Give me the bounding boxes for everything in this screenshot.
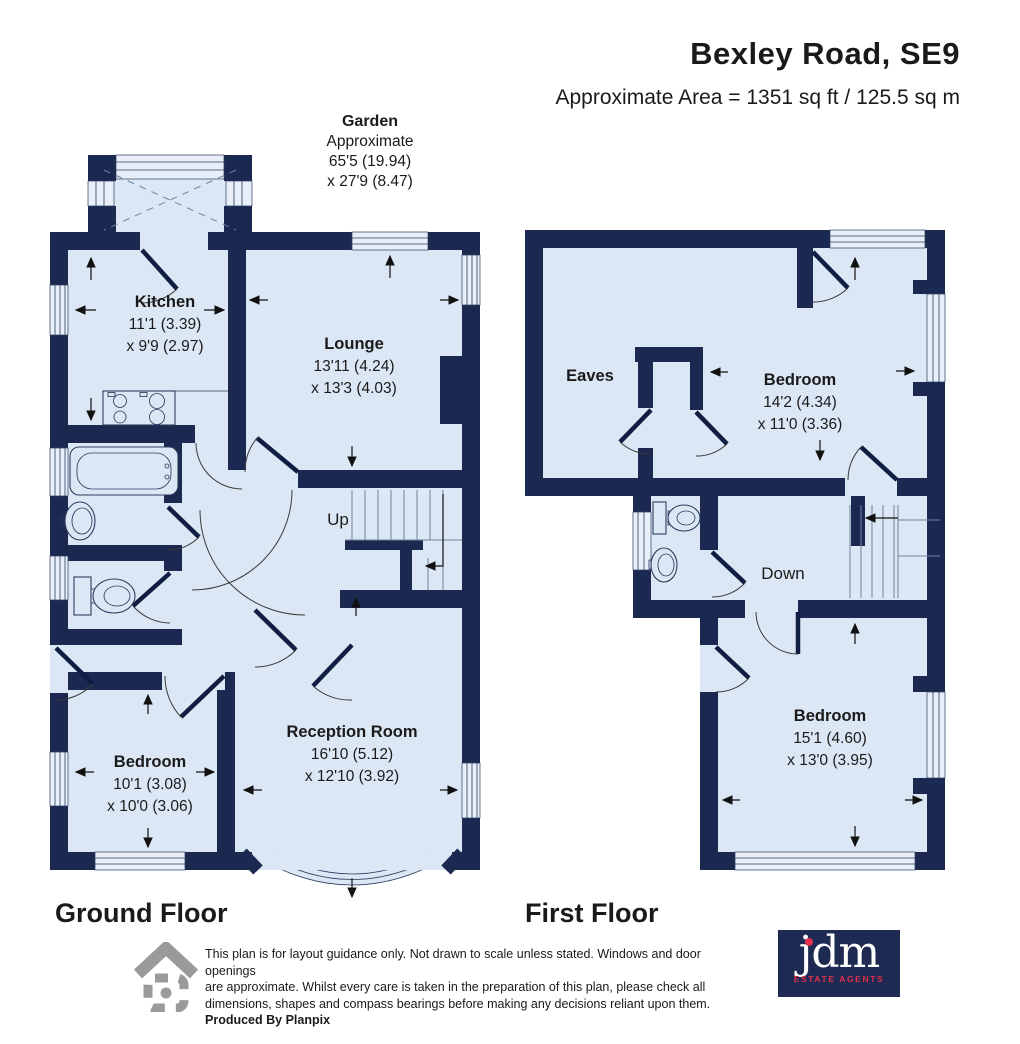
stairs-up-label: Up [327,510,349,529]
gf-bedroom-dim1: 10'1 (3.08) [113,776,187,793]
ff-bedroom1-label: Bedroom [764,371,836,389]
logo-tagline: ESTATE AGENTS [778,974,900,984]
reception-dim1: 16'10 (5.12) [311,746,393,763]
bathtub-icon [70,447,178,495]
lounge-dim2: x 13'3 (4.03) [311,380,397,397]
ff-toilet-icon [653,502,700,534]
reception-label: Reception Room [286,723,417,741]
produced-by: Produced By Planpix [205,1012,725,1029]
lounge-label: Lounge [324,335,384,353]
planpix-house-icon [134,942,198,1012]
kitchen-dim2: x 9'9 (2.97) [126,338,203,355]
first-floor-title: First Floor [525,898,659,929]
disclaimer: This plan is for layout guidance only. N… [205,946,725,1029]
ff-bedroom2-dim1: 15'1 (4.60) [793,730,867,747]
logo-j-dot [805,938,813,946]
disclaimer-line-3: dimensions, shapes and compass bearings … [205,996,725,1013]
eaves-label: Eaves [566,367,614,385]
disclaimer-line-1: This plan is for layout guidance only. N… [205,946,725,979]
disclaimer-line-2: are approximate. Whilst every care is ta… [205,979,725,996]
logo-text: jdm [778,930,900,976]
floorplan-drawing: Kitchen 11'1 (3.39) x 9'9 (2.97) Lounge … [0,0,1020,1044]
lounge-dim1: 13'11 (4.24) [313,358,394,375]
kitchen-dim1: 11'1 (3.39) [129,316,201,333]
ground-floor-title: Ground Floor [55,898,227,929]
kitchen-label: Kitchen [135,293,196,311]
ground-floor-plan: Kitchen 11'1 (3.39) x 9'9 (2.97) Lounge … [50,155,480,897]
first-floor-plan: Eaves Bedroom 14'2 (4.34) x 11'0 (3.36) … [525,230,945,870]
reception-dim2: x 12'10 (3.92) [305,768,399,785]
ff-bedroom2-dim2: x 13'0 (3.95) [787,752,873,769]
gf-bedroom-dim2: x 10'0 (3.06) [107,798,193,815]
stairs-down-label: Down [761,564,804,583]
jdm-estate-agents-logo: jdm ESTATE AGENTS [778,930,900,997]
ff-bedroom1-dim2: x 11'0 (3.36) [758,416,843,433]
ff-bedroom1-dim1: 14'2 (4.34) [763,394,837,411]
first-floor-top-interior [543,248,927,478]
ff-bedroom2-label: Bedroom [794,707,866,725]
toilet-icon [74,577,135,615]
gf-bedroom-label: Bedroom [114,753,186,771]
